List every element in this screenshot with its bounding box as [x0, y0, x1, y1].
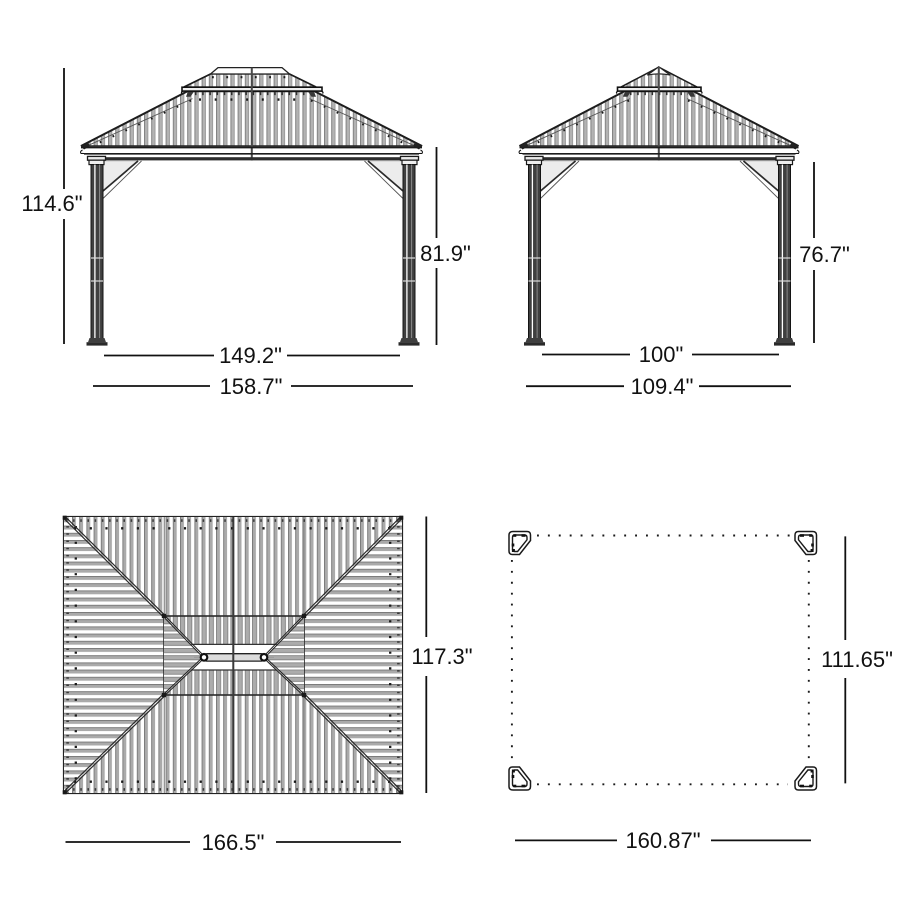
svg-text:100": 100" [639, 342, 684, 367]
svg-text:111.65": 111.65" [821, 647, 893, 672]
svg-text:109.4": 109.4" [631, 374, 694, 399]
svg-text:166.5": 166.5" [202, 830, 265, 855]
svg-text:149.2": 149.2" [219, 343, 282, 368]
svg-text:158.7": 158.7" [220, 374, 283, 399]
svg-text:160.87": 160.87" [625, 828, 700, 853]
svg-text:81.9": 81.9" [420, 241, 471, 266]
svg-text:76.7": 76.7" [799, 242, 850, 267]
svg-text:117.3": 117.3" [411, 644, 472, 669]
svg-text:114.6": 114.6" [21, 191, 82, 216]
